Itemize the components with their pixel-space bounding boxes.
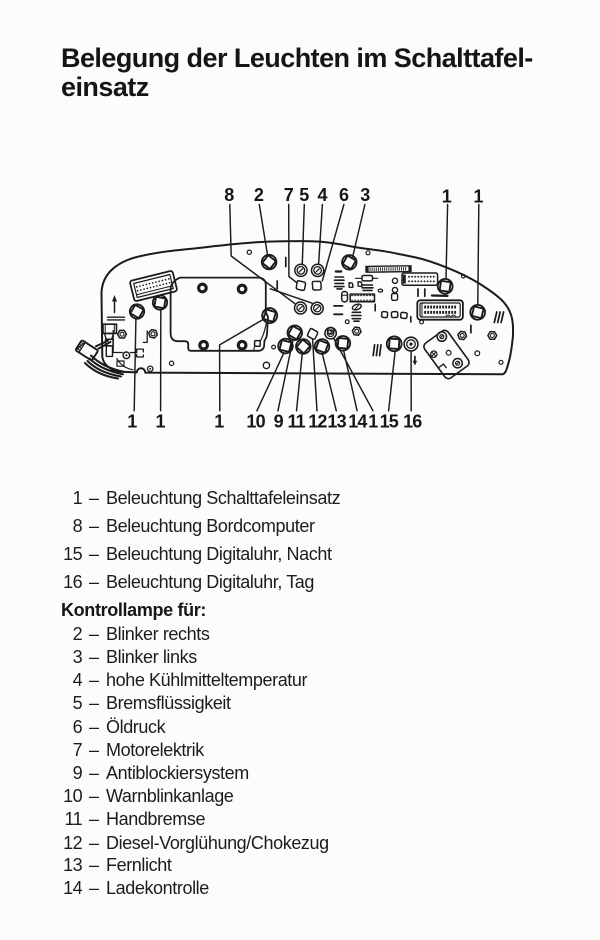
svg-text:6: 6 [339, 185, 349, 205]
svg-text:4: 4 [317, 185, 327, 205]
svg-text:1: 1 [214, 412, 224, 432]
svg-text:1: 1 [155, 412, 165, 432]
svg-text:10: 10 [246, 412, 265, 432]
svg-text:1: 1 [127, 412, 137, 432]
svg-text:3: 3 [360, 185, 370, 205]
svg-text:5: 5 [299, 185, 309, 205]
svg-text:1: 1 [473, 186, 483, 206]
svg-text:15: 15 [380, 412, 399, 432]
svg-text:13: 13 [327, 412, 346, 432]
svg-text:8: 8 [224, 185, 234, 205]
svg-text:12: 12 [308, 412, 327, 432]
svg-text:2: 2 [254, 185, 264, 205]
svg-text:11: 11 [287, 412, 305, 432]
svg-text:1: 1 [442, 186, 452, 206]
svg-text:16: 16 [403, 412, 422, 432]
svg-text:14: 14 [348, 412, 367, 432]
svg-text:1: 1 [368, 412, 378, 432]
svg-text:7: 7 [284, 185, 294, 205]
svg-text:9: 9 [274, 412, 284, 432]
